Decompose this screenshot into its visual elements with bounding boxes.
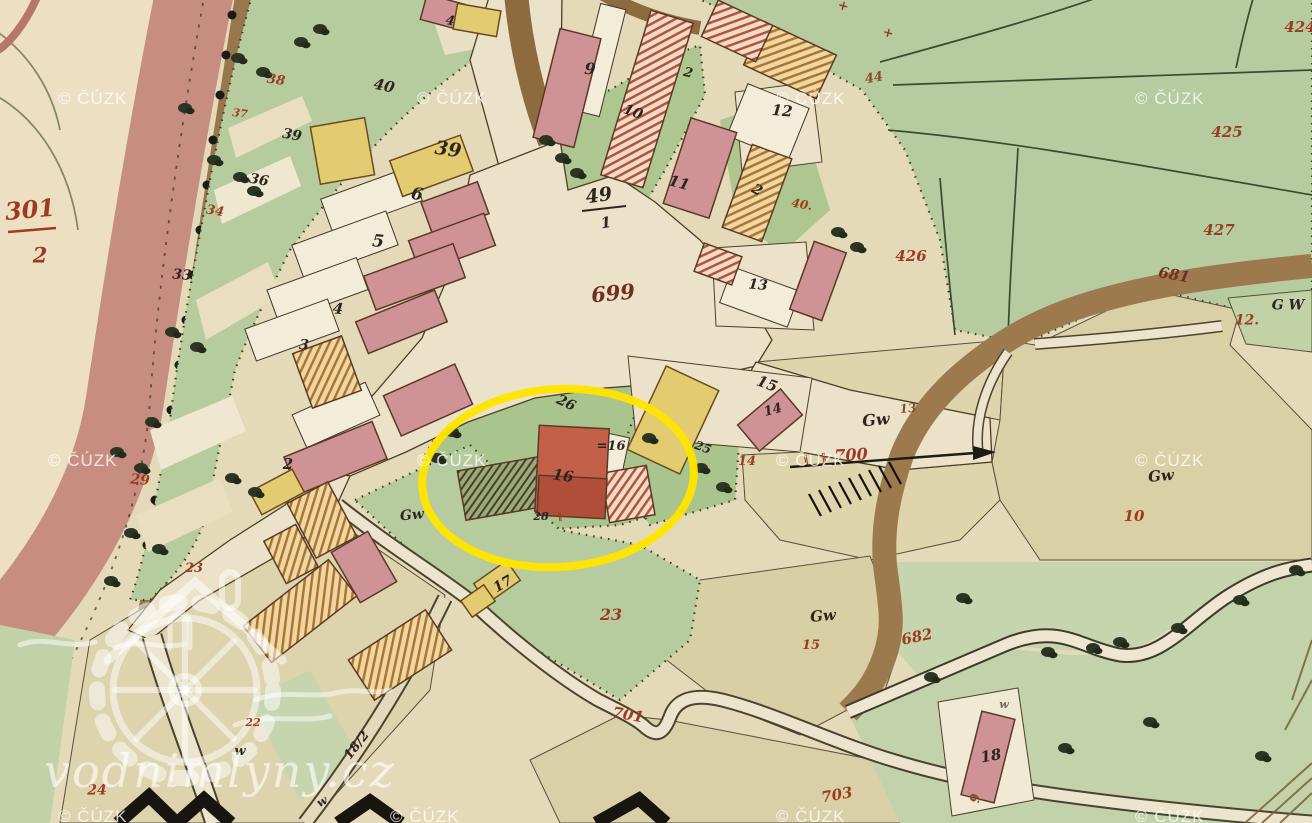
map-drawing [0,0,1312,823]
map-canvas: 30123837342923222423701703682700‖‖141510… [0,0,1312,823]
